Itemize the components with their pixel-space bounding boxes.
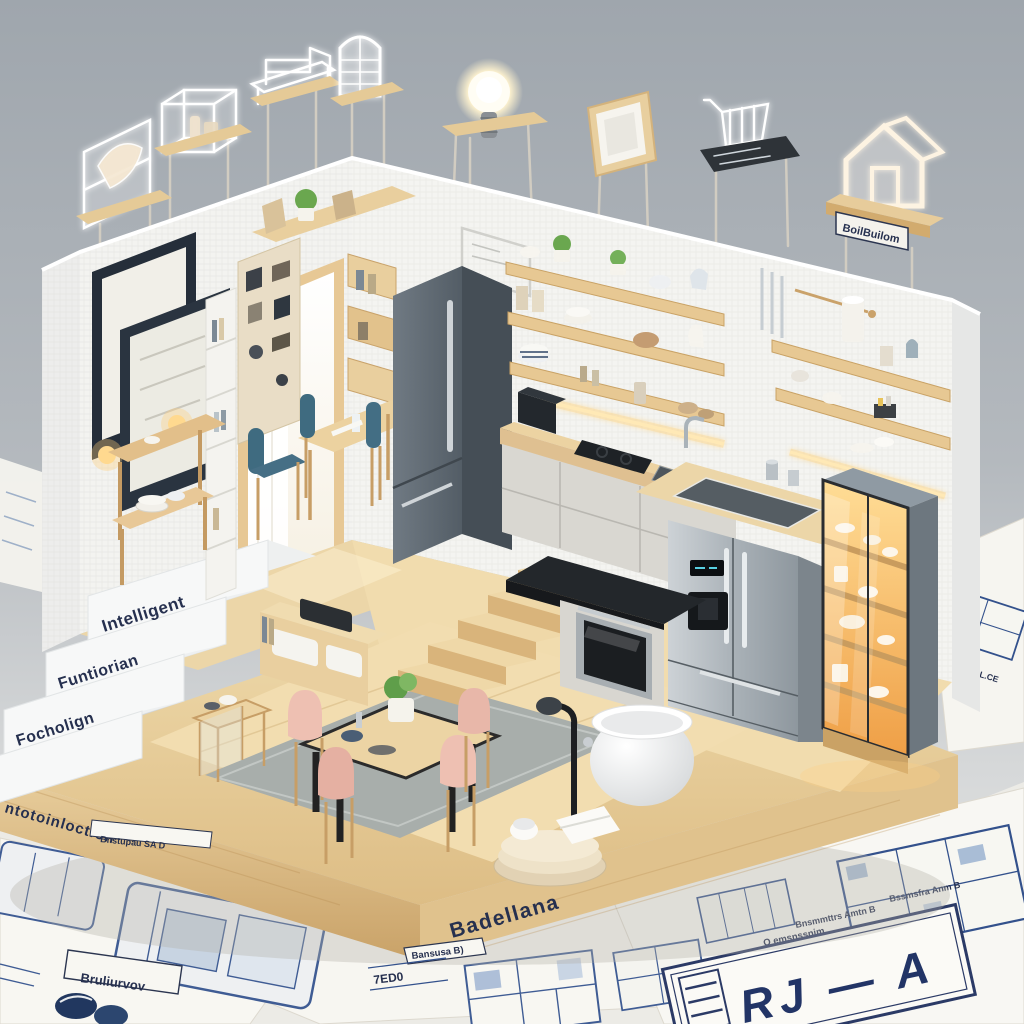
right-wall-outer-slab — [952, 300, 980, 712]
mug-on-table — [219, 695, 237, 705]
isometric-kitchen-model-scene: BoilBuilom Bssmsfra — [0, 0, 1024, 1024]
moodboard — [238, 238, 300, 444]
scene-canvas: BoilBuilom Bssmsfra — [0, 0, 1024, 1024]
glass-jar-1 — [516, 286, 528, 310]
tall-canister — [842, 300, 864, 342]
cubby-shelves — [348, 254, 396, 420]
picture-frame-icon — [588, 92, 656, 176]
table-tray — [368, 745, 396, 755]
glow-spill — [800, 760, 940, 792]
lamp-knob — [583, 737, 593, 747]
canister — [634, 382, 646, 404]
lamp-globe-1 — [98, 446, 116, 464]
tall-fridge-handle — [447, 300, 453, 452]
large-white-bowl — [590, 705, 694, 806]
pitcher — [688, 324, 704, 348]
dark-caddy — [874, 404, 896, 418]
wood-bowl — [633, 332, 659, 348]
divider-shelf — [206, 288, 236, 600]
table-shaker — [356, 712, 362, 728]
handle-right — [742, 552, 747, 648]
table-bowl — [341, 730, 363, 742]
bowl-white — [520, 246, 540, 258]
glass-jar-2 — [532, 290, 544, 312]
dishes-on-top — [850, 443, 874, 453]
lamp-head — [536, 697, 562, 715]
cabinet-side — [908, 496, 938, 756]
table-plant-pot — [388, 698, 414, 722]
rail-knob — [868, 310, 876, 318]
tall-fridge — [393, 266, 512, 564]
blue-bottle — [906, 339, 918, 358]
shelf-plant-2 — [610, 250, 626, 266]
